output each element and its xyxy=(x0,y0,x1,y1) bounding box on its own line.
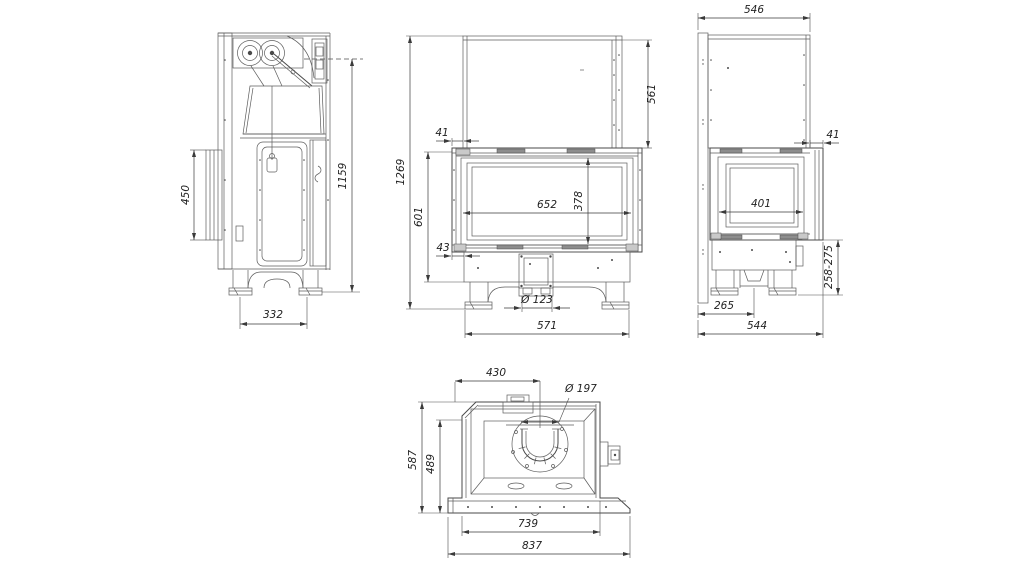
hinge-block xyxy=(567,149,595,153)
dim-air-inlet-diameter: Ø 123 xyxy=(520,294,553,306)
glass-pane xyxy=(718,157,804,234)
left-side-view-dimensions: 450 1159 332 xyxy=(180,59,363,329)
dim-top-depth: 546 xyxy=(744,4,764,16)
dim-overall-depth: 544 xyxy=(747,320,767,332)
drawing-canvas: 450 1159 332 xyxy=(0,0,1024,576)
technical-drawing: 450 1159 332 xyxy=(0,0,1024,576)
dim-body-width: 739 xyxy=(518,518,538,530)
dim-flue-offset: 265 xyxy=(714,300,734,312)
dim-front-offset: 41 xyxy=(826,129,839,141)
dim-overall-height: 1269 xyxy=(395,158,407,185)
dim-base-width: 571 xyxy=(537,320,557,332)
dim-hood-height: 561 xyxy=(646,84,658,104)
plan-view xyxy=(448,381,630,516)
pulley-icon xyxy=(238,41,285,66)
dim-top-offset: 41 xyxy=(435,127,448,139)
front-view-dimensions: 1269 601 41 43 561 652 378 Ø 123 571 xyxy=(395,36,658,338)
dim-inner-depth: 489 xyxy=(425,454,437,474)
dim-base-height-range: 258-275 xyxy=(823,245,835,289)
left-side-view xyxy=(206,33,330,295)
hinge-block xyxy=(497,149,525,153)
plan-view-dimensions: 430 Ø 197 489 587 739 837 xyxy=(407,367,630,558)
dim-overall-depth: 587 xyxy=(407,450,419,470)
dim-glass-width: 652 xyxy=(537,199,557,211)
dim-overall-height: 1159 xyxy=(337,162,349,189)
dim-flue-center-offset: 430 xyxy=(486,367,506,379)
dim-frame-height: 450 xyxy=(180,185,192,205)
latch-hook-icon xyxy=(315,166,321,182)
dim-flue-diameter: Ø 197 xyxy=(564,383,597,395)
dim-overall-width: 837 xyxy=(522,540,542,552)
dim-bottom-offset: 43 xyxy=(436,242,449,254)
dim-body-height: 601 xyxy=(413,207,425,227)
dim-base-depth: 332 xyxy=(263,309,283,321)
side-bracket xyxy=(600,442,620,466)
dim-glass-width: 401 xyxy=(751,198,771,210)
front-view xyxy=(452,36,642,309)
right-side-view xyxy=(698,33,823,303)
dim-glass-height: 378 xyxy=(573,191,585,211)
